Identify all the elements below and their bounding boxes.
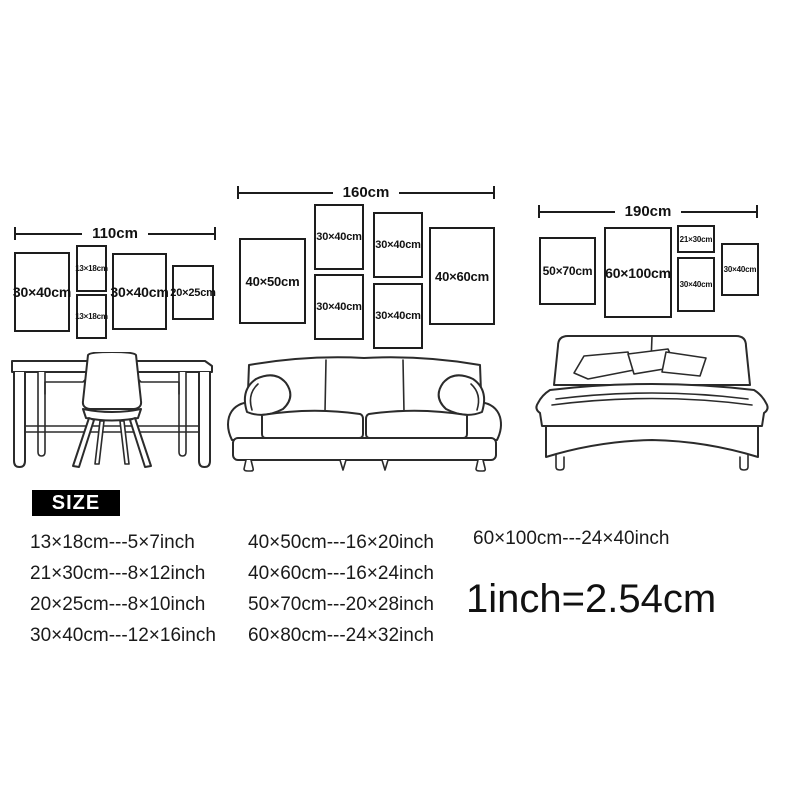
frame-30x40cm: 30×40cm	[373, 212, 423, 278]
frame-40x50cm: 40×50cm	[239, 238, 306, 324]
frame-30x40cm: 30×40cm	[14, 252, 70, 332]
frame-label: 30×40cm	[375, 239, 420, 251]
arrow-line	[681, 211, 756, 213]
frame-label: 30×40cm	[680, 280, 713, 289]
frame-40x60cm: 40×60cm	[429, 227, 495, 325]
size-column-1: 13×18cm---5×7inch 21×30cm---8×12inch 20×…	[30, 527, 216, 651]
desk-chair-illustration	[9, 352, 215, 472]
size-conversion-line: 60×100cm---24×40inch	[473, 528, 669, 550]
frame-60x100cm: 60×100cm	[604, 227, 672, 318]
frame-label: 60×100cm	[605, 265, 671, 281]
dimension-label: 110cm	[82, 226, 148, 241]
frame-label: 40×60cm	[435, 269, 489, 284]
frame-label: 30×40cm	[13, 284, 71, 300]
arrow-line	[399, 192, 493, 194]
size-guide-image: 110cm 30×40cm 13×18cm 13×18cm 30×40cm 20…	[0, 0, 800, 800]
frame-label: 50×70cm	[543, 264, 593, 278]
arrow-line	[148, 233, 214, 235]
dimension-label: 190cm	[615, 204, 682, 219]
size-conversion-line: 40×60cm---16×24inch	[248, 558, 434, 589]
frame-label: 30×40cm	[316, 231, 361, 243]
frame-label: 30×40cm	[724, 265, 757, 274]
frame-30x40cm: 30×40cm	[314, 274, 364, 340]
sofa-illustration	[222, 348, 507, 473]
frame-label: 21×30cm	[680, 235, 713, 244]
size-conversion-line: 20×25cm---8×10inch	[30, 589, 216, 620]
frame-13x18cm: 13×18cm	[76, 245, 107, 292]
dimension-arrow-160: 160cm	[237, 186, 495, 199]
frame-label: 30×40cm	[110, 284, 168, 300]
size-badge: SIZE	[32, 490, 120, 516]
frame-label: 30×40cm	[316, 301, 361, 313]
size-conversion-line: 13×18cm---5×7inch	[30, 527, 216, 558]
inch-conversion-note: 1inch=2.54cm	[466, 577, 716, 622]
frame-label: 20×25cm	[170, 287, 215, 299]
frame-50x70cm: 50×70cm	[539, 237, 596, 305]
size-conversion-line: 40×50cm---16×20inch	[248, 527, 434, 558]
frame-13x18cm: 13×18cm	[76, 294, 107, 339]
frame-label: 13×18cm	[75, 312, 108, 321]
dimension-arrow-110: 110cm	[14, 227, 216, 240]
frame-21x30cm: 21×30cm	[677, 225, 715, 253]
frame-30x40cm: 30×40cm	[112, 253, 167, 330]
size-conversion-line: 50×70cm---20×28inch	[248, 589, 434, 620]
dimension-label: 160cm	[333, 185, 400, 200]
arrow-end-tick	[493, 186, 495, 199]
arrow-end-tick	[214, 227, 216, 240]
frame-30x40cm: 30×40cm	[373, 283, 423, 349]
size-conversion-line: 60×80cm---24×32inch	[248, 620, 434, 651]
arrow-line	[540, 211, 615, 213]
frame-30x40cm: 30×40cm	[314, 204, 364, 270]
size-conversion-line: 30×40cm---12×16inch	[30, 620, 216, 651]
arrow-line	[239, 192, 333, 194]
size-conversion-line: 21×30cm---8×12inch	[30, 558, 216, 589]
size-column-2: 40×50cm---16×20inch 40×60cm---16×24inch …	[248, 527, 434, 651]
frame-30x40cm: 30×40cm	[677, 257, 715, 312]
frame-label: 13×18cm	[75, 264, 108, 273]
frame-label: 30×40cm	[375, 310, 420, 322]
dimension-arrow-190: 190cm	[538, 205, 758, 218]
arrow-end-tick	[756, 205, 758, 218]
frame-30x40cm: 30×40cm	[721, 243, 759, 296]
arrow-line	[16, 233, 82, 235]
frame-20x25cm: 20×25cm	[172, 265, 214, 320]
frame-label: 40×50cm	[246, 274, 300, 289]
bed-illustration	[516, 333, 788, 473]
